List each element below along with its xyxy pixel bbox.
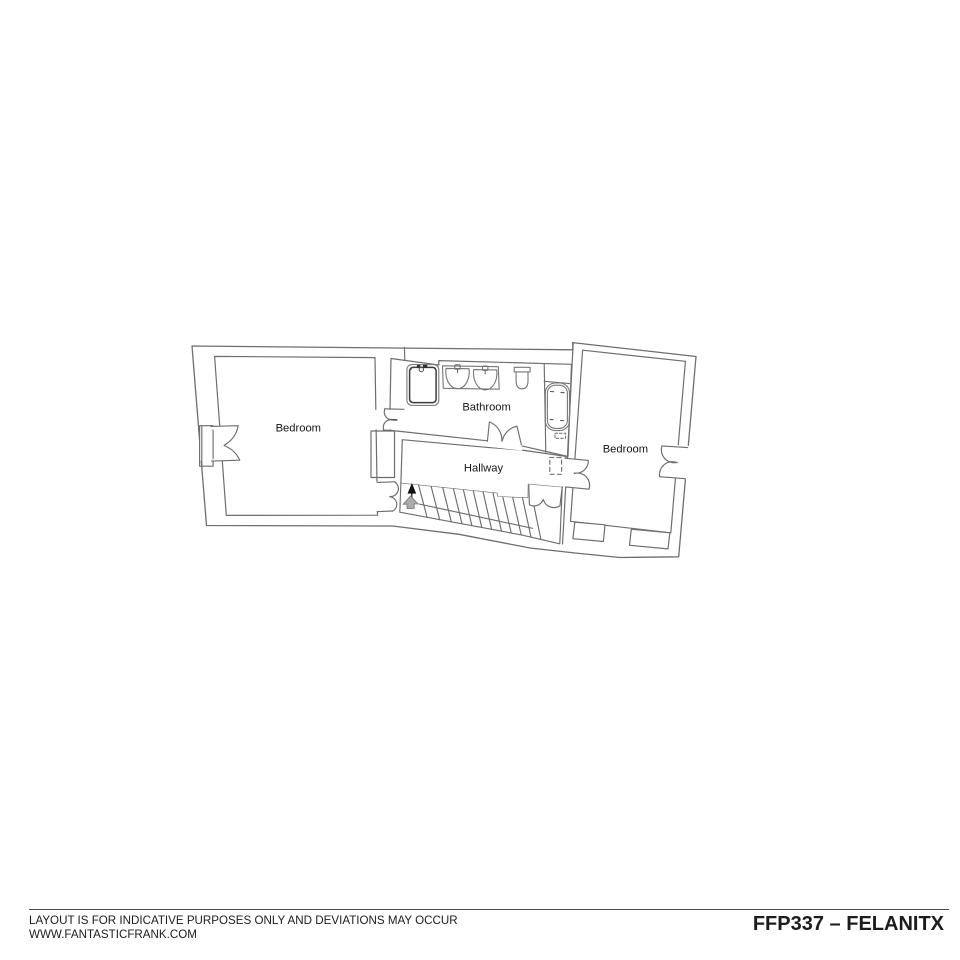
svg-text:Bedroom: Bedroom [603, 443, 648, 455]
svg-text:Hallway: Hallway [464, 462, 504, 474]
svg-text:Bathroom: Bathroom [462, 402, 511, 414]
svg-text:Bedroom: Bedroom [276, 422, 321, 434]
